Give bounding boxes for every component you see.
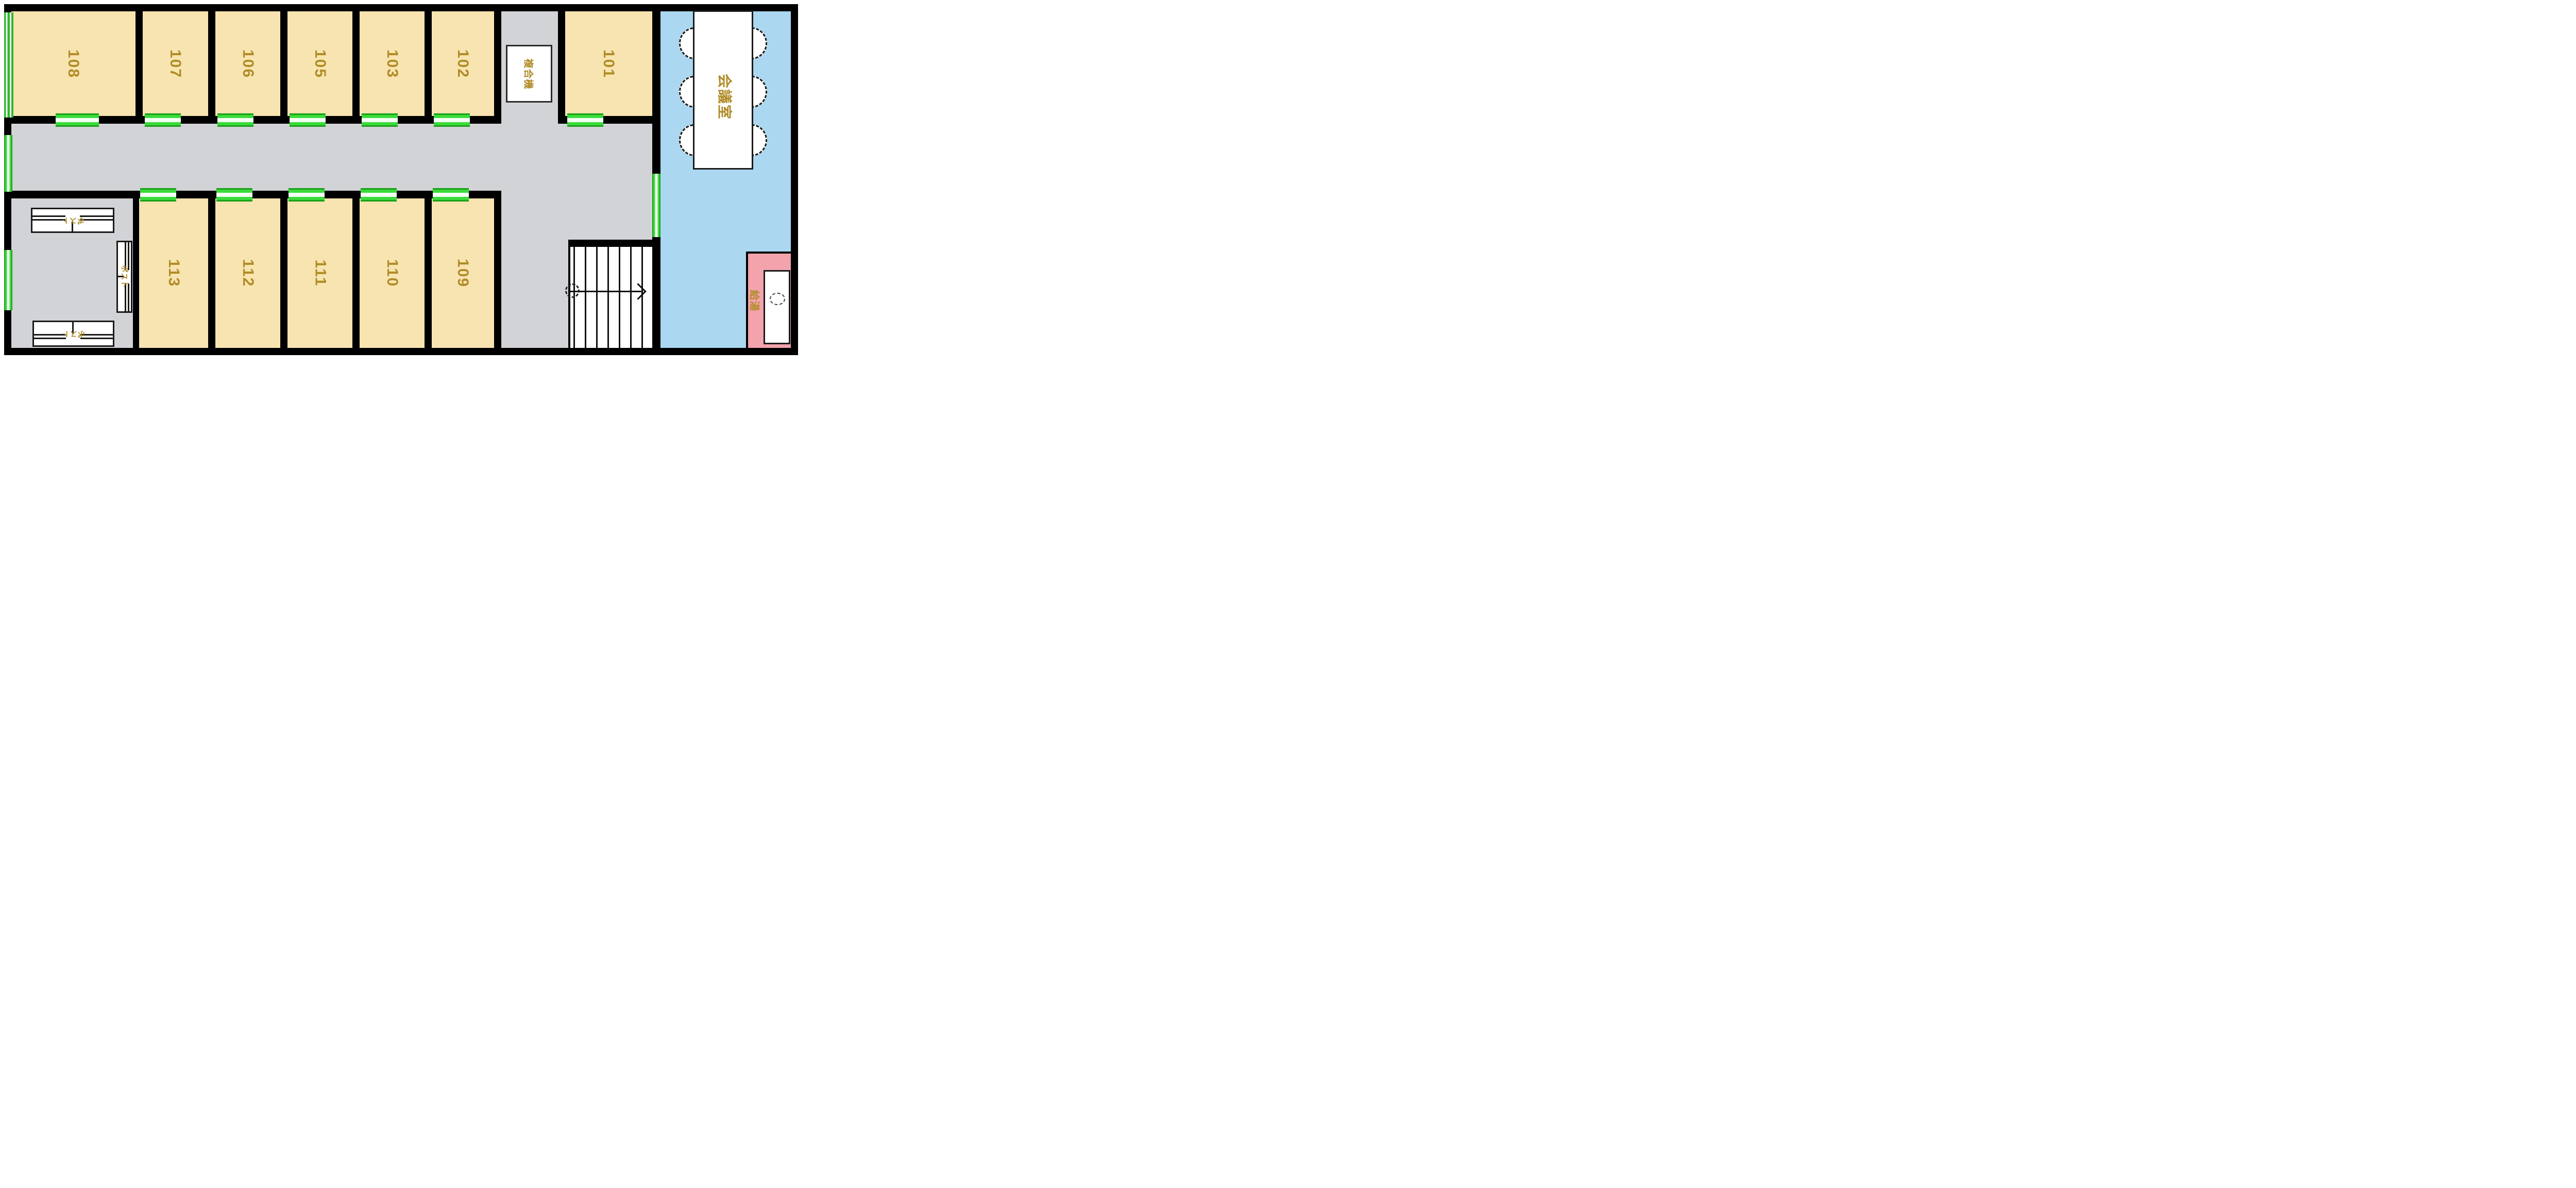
mailbox-top-label: ポスト	[61, 215, 84, 226]
door-marker-room108	[56, 113, 99, 127]
room-111-label: 111	[311, 260, 329, 287]
room-105-label: 105	[311, 49, 329, 78]
room-106: 106	[215, 11, 280, 116]
room-112-label: 112	[239, 259, 257, 287]
door-marker-room107	[145, 113, 181, 127]
mailbox-bottom-label: ポスト	[62, 329, 85, 339]
room-110: 110	[360, 198, 425, 348]
room-113: 113	[139, 198, 208, 348]
window-marker-mailroom	[4, 250, 12, 310]
mailbox-top: ポスト	[31, 208, 114, 233]
room-108: 108	[11, 11, 135, 116]
building-outline: 108 107 106 105 103 102 101 複合機	[4, 4, 798, 355]
copier-label: 複合機	[522, 58, 536, 89]
door-marker-room110	[361, 188, 397, 202]
door-marker-room103	[362, 113, 398, 127]
hot-water-label: 給湯	[748, 290, 763, 311]
stair-treads	[573, 247, 645, 348]
door-marker-room111	[289, 188, 325, 202]
stair-start-circle	[565, 283, 580, 298]
door-marker-room101	[567, 113, 603, 127]
room-102-label: 102	[454, 49, 472, 78]
sink-basin-icon	[770, 293, 785, 305]
floor-plan-canvas: 108 107 106 105 103 102 101 複合機	[0, 0, 807, 367]
door-marker-room105	[290, 113, 326, 127]
sink-counter	[764, 270, 790, 344]
door-marker-room112	[216, 188, 252, 202]
meeting-room-label: 会議室	[715, 74, 736, 120]
mailbox-bottom: ポスト	[32, 321, 114, 347]
door-marker-meeting-room	[652, 174, 660, 237]
room-102: 102	[432, 11, 494, 116]
room-113-label: 113	[165, 259, 182, 287]
corridor-right-upper	[501, 191, 652, 240]
room-109-label: 109	[454, 259, 472, 288]
room-109: 109	[432, 198, 494, 348]
room-103-label: 103	[383, 49, 401, 78]
staircase	[570, 247, 652, 348]
door-marker-room106	[217, 113, 253, 127]
corridor-right-lower	[501, 240, 568, 348]
room-103: 103	[360, 11, 425, 116]
window-marker-corridor	[4, 135, 12, 192]
corridor-main	[11, 124, 652, 191]
room-105: 105	[287, 11, 352, 116]
room-107: 107	[143, 11, 208, 116]
room-108-label: 108	[65, 49, 82, 78]
room-106-label: 106	[239, 49, 257, 78]
room-110-label: 110	[383, 259, 401, 287]
door-marker-room113	[140, 188, 176, 202]
room-112: 112	[215, 198, 280, 348]
door-marker-room109	[433, 188, 469, 202]
room-101: 101	[565, 11, 652, 116]
mailbox-right: ポスト	[116, 241, 132, 313]
room-111: 111	[287, 198, 352, 348]
copier-box: 複合機	[506, 45, 552, 103]
door-marker-room102	[434, 113, 470, 127]
room-107-label: 107	[167, 49, 184, 78]
mailbox-right-label: ポスト	[120, 265, 130, 289]
window-marker-room108	[4, 12, 13, 118]
room-101-label: 101	[600, 49, 618, 78]
